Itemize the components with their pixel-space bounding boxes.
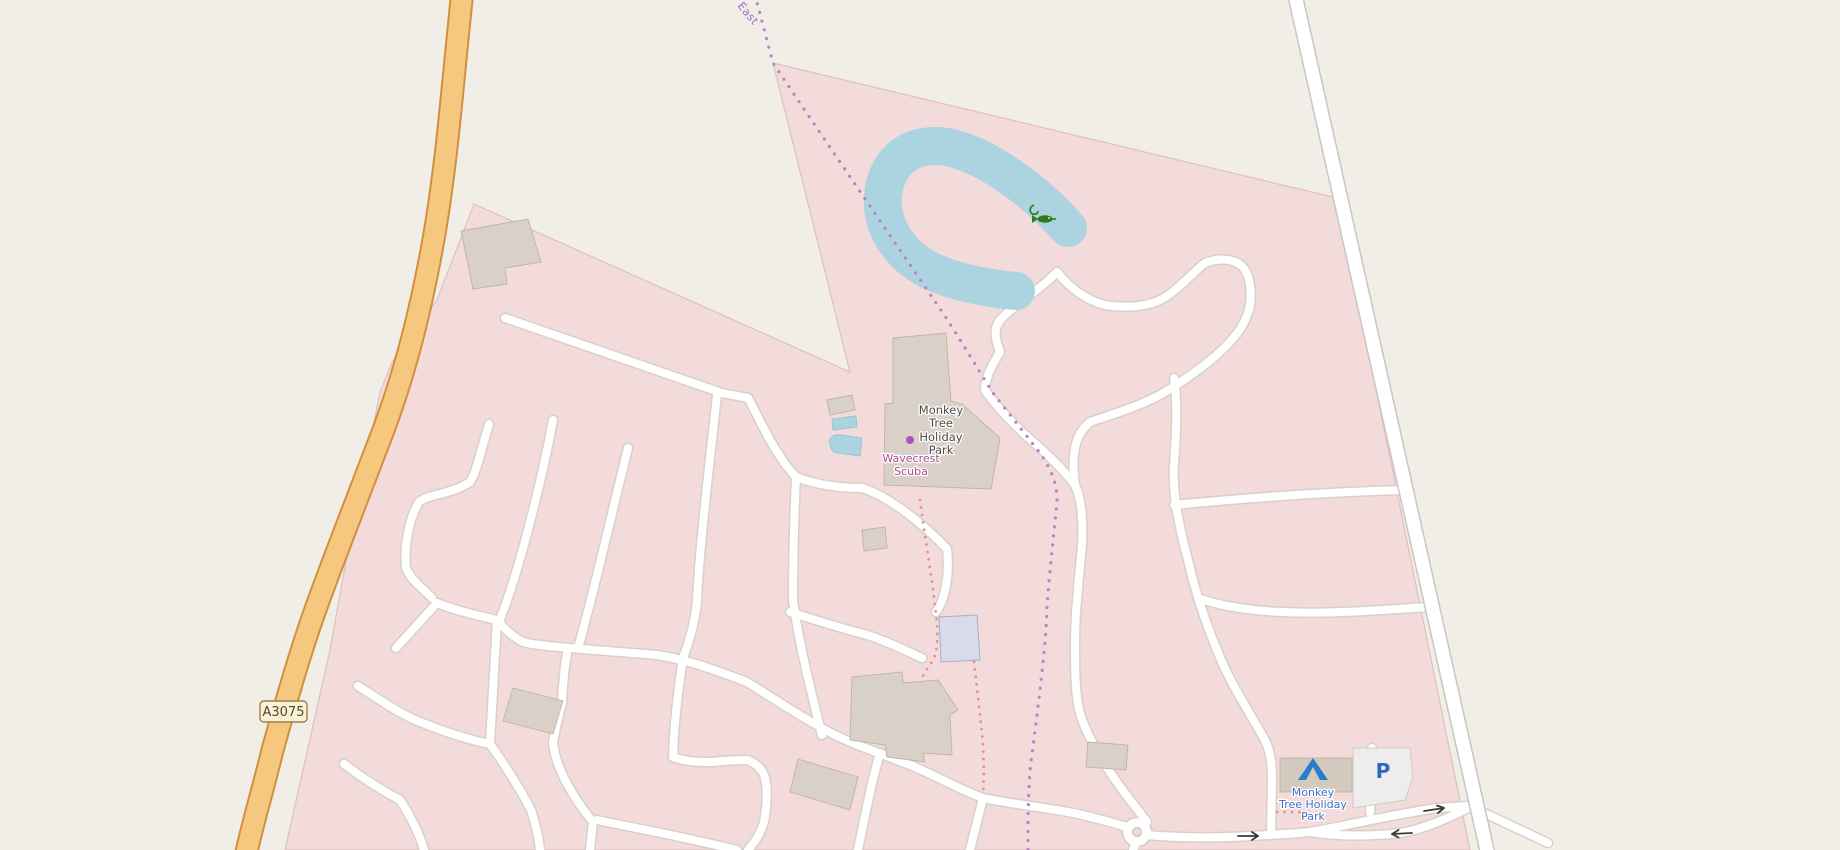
building-pool-hall [939,615,980,662]
svg-text:Scuba: Scuba [894,465,928,478]
road-ref-badge: A3075 [260,701,307,722]
map-canvas[interactable]: P A3075 Monkey Tree Holiday Park Wavecre… [0,0,1840,850]
svg-text:A3075: A3075 [263,705,305,720]
poi-dot-icon [906,436,914,444]
parking-p-icon: P [1376,759,1391,783]
svg-text:Park: Park [1301,810,1325,823]
building-entrance-block [1086,742,1128,770]
svg-text:Holiday: Holiday [919,430,962,444]
svg-text:Wavecrest: Wavecrest [882,452,940,465]
building-small-2 [862,527,887,551]
map-svg[interactable]: P A3075 Monkey Tree Holiday Park Wavecre… [0,0,1840,850]
svg-text:Monkey: Monkey [919,403,964,417]
svg-text:Tree: Tree [928,416,953,430]
